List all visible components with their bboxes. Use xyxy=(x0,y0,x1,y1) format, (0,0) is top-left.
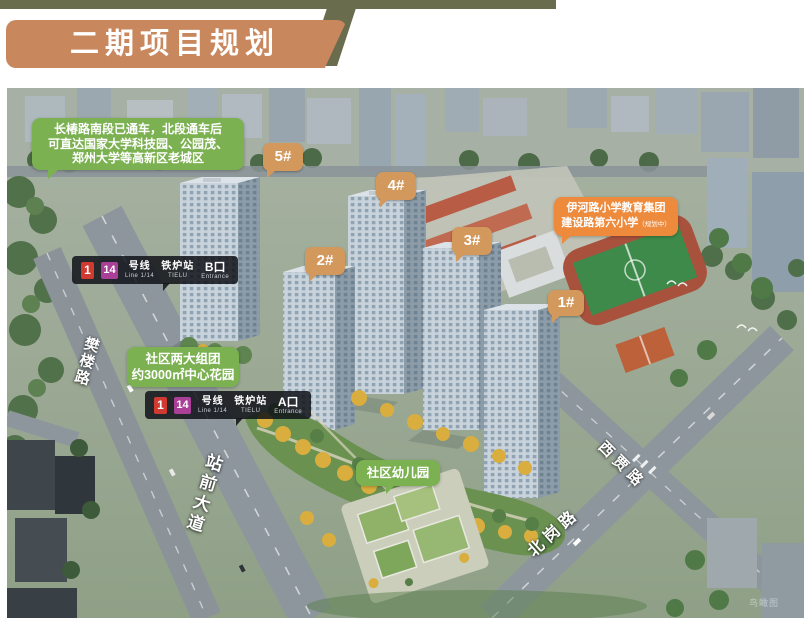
school-name: 建设路第六小学 xyxy=(561,217,638,229)
school-status: （规划中） xyxy=(638,221,671,228)
metro-station-pinyin: TIELU xyxy=(241,408,261,414)
metro-exit-b-label: B口 xyxy=(205,261,226,273)
metro-line-sub: Line 1/14 xyxy=(198,408,227,414)
school-note: 伊河路小学教育集团 建设路第六小学（规划中） xyxy=(554,197,678,236)
metro-line-label: 号线 xyxy=(129,262,151,272)
aerial-photo: 樊楼路 站前大道 西贾路 北岗路 长椿路南段已通车，北段通车后 可直达国家大学科… xyxy=(7,88,804,618)
community-garden-note: 社区两大组团 约3000㎡中心花园 xyxy=(127,347,239,387)
school-note-line2: 建设路第六小学（规划中） xyxy=(554,216,678,232)
badge-pointer xyxy=(456,254,465,262)
building-badge-4: 4# xyxy=(376,172,416,200)
metro-b-pointer xyxy=(163,283,170,291)
community-note-line2: 约3000㎡中心花园 xyxy=(127,367,239,383)
metro-line1-icon: 1 xyxy=(81,262,94,279)
top-accent-strip xyxy=(0,0,556,9)
building-badge-5: 5# xyxy=(263,143,303,171)
metro-station-name: 铁炉站 xyxy=(161,262,194,272)
traffic-note-pointer xyxy=(48,169,59,179)
metro-exit-a-sub: Entrance xyxy=(274,409,302,415)
school-note-pointer xyxy=(562,235,572,244)
metro-station-label-exit-a: 1 14 号线 Line 1/14 铁炉站 TIELU A口 Entrance xyxy=(145,391,311,419)
building-badge-3: 3# xyxy=(452,227,492,255)
metro-exit-b-sub: Entrance xyxy=(201,274,229,280)
metro-line1-icon: 1 xyxy=(154,397,167,414)
kindergarten-label: 社区幼儿园 xyxy=(356,460,440,486)
badge-pointer xyxy=(309,274,318,282)
traffic-note-line2: 可直达国家大学科技园、公园茂、 xyxy=(34,137,242,152)
metro-line-label: 号线 xyxy=(202,397,224,407)
metro-line-sub: Line 1/14 xyxy=(125,273,154,279)
building-badge-1: 1# xyxy=(548,290,584,316)
metro-station-pinyin: TIELU xyxy=(168,273,188,279)
community-note-line1: 社区两大组团 xyxy=(127,351,239,367)
kindergarten-pointer xyxy=(386,485,395,494)
metro-a-pointer xyxy=(236,418,243,426)
metro-line14-icon: 14 xyxy=(101,262,118,279)
slide: 二期项目规划 xyxy=(0,0,811,622)
badge-pointer xyxy=(380,199,389,207)
title-banner: 二期项目规划 xyxy=(6,20,347,68)
badge-pointer xyxy=(267,170,276,178)
school-note-line1: 伊河路小学教育集团 xyxy=(554,201,678,216)
metro-station-label-exit-b: 1 14 号线 Line 1/14 铁炉站 TIELU B口 Entrance xyxy=(72,256,238,284)
traffic-note: 长椿路南段已通车，北段通车后 可直达国家大学科技园、公园茂、 郑州大学等高新区老… xyxy=(32,118,244,170)
page-title: 二期项目规划 xyxy=(70,20,280,68)
metro-line14-icon: 14 xyxy=(174,397,191,414)
view-caption: 鸟瞰图 xyxy=(749,596,779,609)
building-badge-2: 2# xyxy=(305,247,345,275)
metro-station-name: 铁炉站 xyxy=(234,397,267,407)
traffic-note-line1: 长椿路南段已通车，北段通车后 xyxy=(34,122,242,137)
metro-exit-a-label: A口 xyxy=(278,396,299,408)
badge-pointer xyxy=(552,315,561,323)
traffic-note-line3: 郑州大学等高新区老城区 xyxy=(34,151,242,166)
